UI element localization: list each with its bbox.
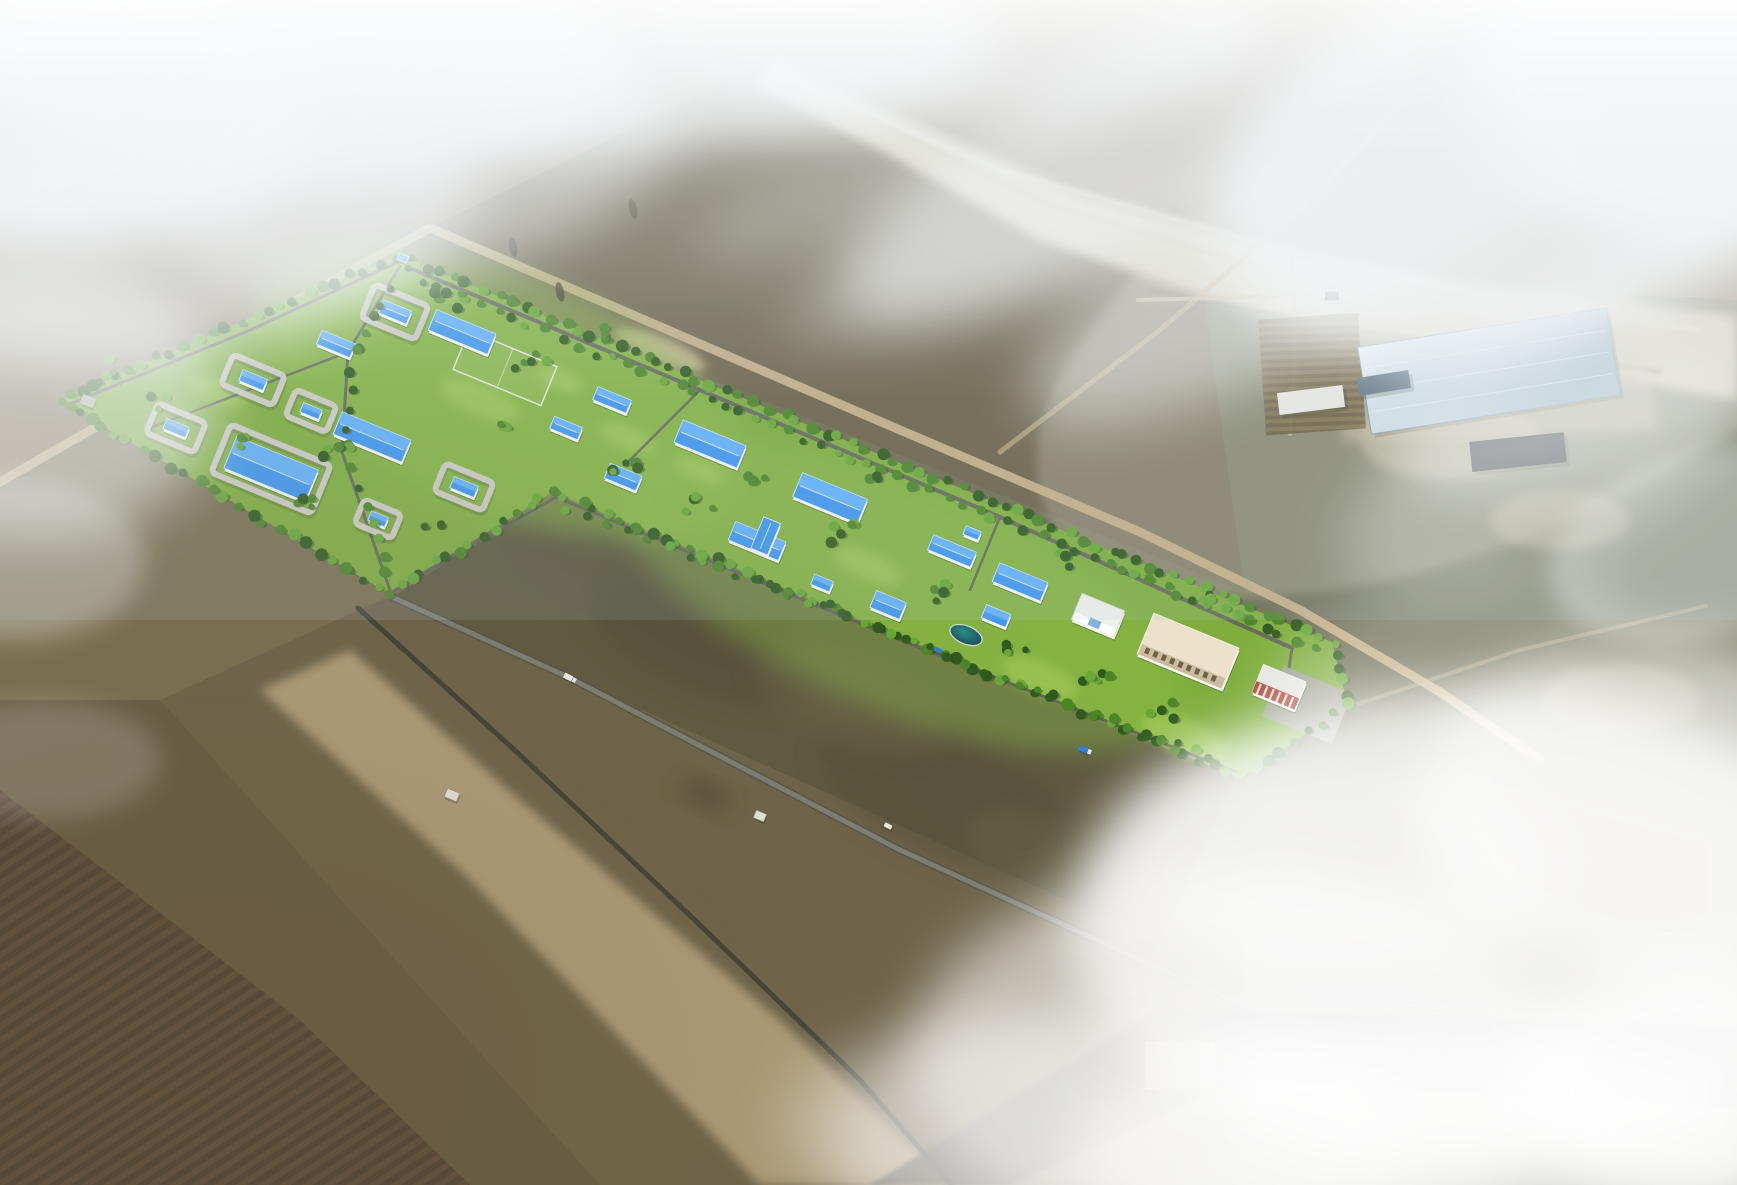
scene-svg bbox=[0, 0, 1737, 1185]
clouds-group bbox=[0, 0, 1737, 1185]
aerial-site-rendering bbox=[0, 0, 1737, 1185]
warm-tint bbox=[0, 0, 1737, 1185]
